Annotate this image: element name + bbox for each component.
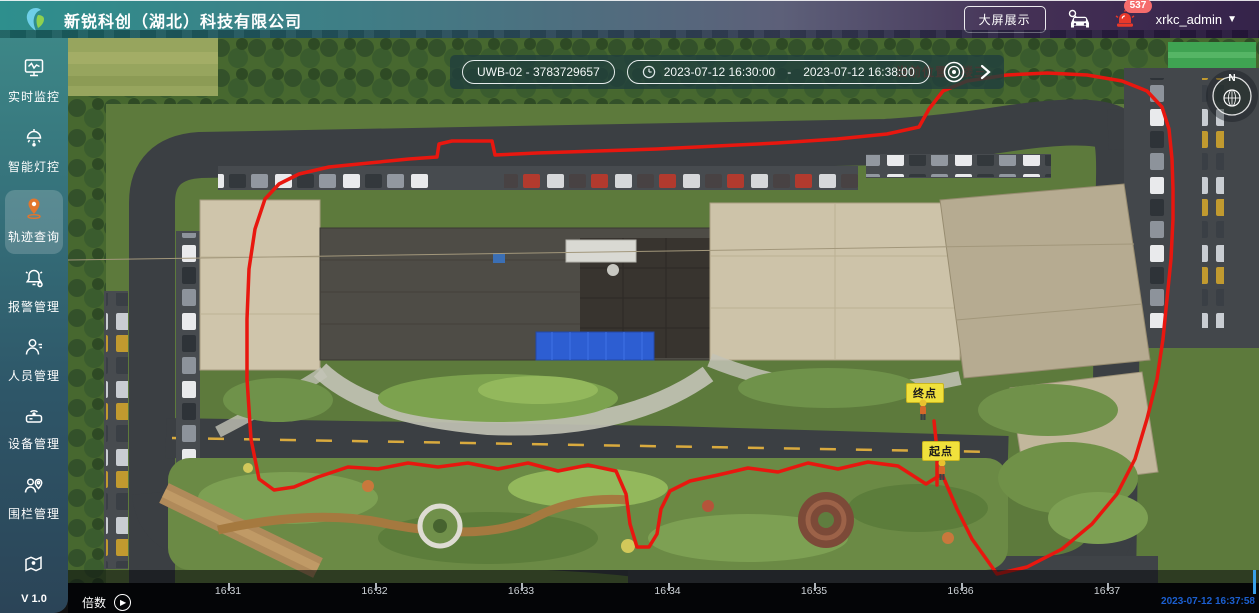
sidebar-item-alarm-management[interactable]: 报警管理 xyxy=(0,264,68,324)
trajectory-pin-icon xyxy=(5,196,63,222)
person-marker-end-icon xyxy=(916,399,930,426)
username-label: xrkc_admin xyxy=(1156,12,1222,27)
timeline-tick-label: 16:32 xyxy=(361,585,387,597)
person-marker-start-icon xyxy=(935,459,949,486)
time-range-picker[interactable]: 2023-07-12 16:30:00 - 2023-07-12 16:38:0… xyxy=(627,60,930,84)
company-logo-icon xyxy=(22,6,50,34)
timeline-track[interactable] xyxy=(68,570,1259,583)
header: 新锐科创（湖北）科技有限公司 大屏展示 xyxy=(0,0,1259,38)
sidebar-item-smart-lighting[interactable]: 智能灯控 xyxy=(0,124,68,184)
timeline-tick-label: 16:36 xyxy=(947,585,973,597)
sidebar-item-label: 轨迹查询 xyxy=(5,228,63,245)
sidebar-item-label: 实时监控 xyxy=(0,88,68,105)
sidebar-item-label: 设备管理 xyxy=(0,435,68,452)
time-start-value: 2023-07-12 16:30:00 xyxy=(664,65,775,79)
sidebar-item-label: 智能灯控 xyxy=(0,158,68,175)
sidebar: 实时监控 智能灯控 xyxy=(0,38,68,613)
aerial-map[interactable]: UWB-02 - 3783729657 2023-07-12 16:30:00 … xyxy=(68,38,1259,583)
compass-control[interactable]: N xyxy=(1204,68,1259,124)
time-separator: - xyxy=(787,65,791,79)
compass-north-label: N xyxy=(1228,73,1235,84)
notification-count-badge: 537 xyxy=(1124,0,1153,13)
smart-light-icon xyxy=(0,126,68,152)
header-actions: 大屏展示 xyxy=(964,6,1237,33)
fence-icon xyxy=(0,473,68,499)
user-menu[interactable]: xrkc_admin ▼ xyxy=(1156,12,1237,27)
play-button[interactable]: ▶ xyxy=(114,594,131,611)
time-end-value: 2023-07-12 16:38:00 xyxy=(803,65,914,79)
current-time-label: 2023-07-12 16:37:58 xyxy=(1161,596,1255,607)
timeline-tick-label: 16:37 xyxy=(1094,585,1120,597)
sidebar-item-trajectory-query[interactable]: 轨迹查询 xyxy=(5,190,63,254)
alarm-notifications-icon[interactable]: 537 xyxy=(1114,9,1136,30)
person-icon xyxy=(0,335,68,361)
sidebar-item-device-management[interactable]: 设备管理 xyxy=(0,401,68,461)
trajectory-query-bar: UWB-02 - 3783729657 2023-07-12 16:30:00 … xyxy=(450,55,1004,89)
timeline-tick-label: 16:34 xyxy=(654,585,680,597)
timeline-tick-label: 16:35 xyxy=(801,585,827,597)
search-icon[interactable] xyxy=(942,60,966,84)
page-title: 新锐科创（湖北）科技有限公司 xyxy=(64,8,302,32)
clock-icon xyxy=(642,65,656,79)
timeline-tick-label: 16:31 xyxy=(215,585,241,597)
map-icon xyxy=(0,552,68,578)
chevron-down-icon: ▼ xyxy=(1227,14,1237,25)
device-select[interactable]: UWB-02 - 3783729657 xyxy=(462,60,615,84)
sidebar-item-fence-management[interactable]: 围栏管理 xyxy=(0,471,68,531)
big-screen-button[interactable]: 大屏展示 xyxy=(964,6,1046,33)
monitor-icon xyxy=(0,56,68,82)
timeline-playhead[interactable] xyxy=(1253,570,1256,594)
timeline: 16:3116:3216:3316:3416:3516:3616:37 倍数 ▶… xyxy=(68,570,1259,613)
sidebar-item-label: 人员管理 xyxy=(0,367,68,384)
sidebar-item-label: 围栏管理 xyxy=(0,505,68,522)
version-label: V 1.0 xyxy=(0,593,68,605)
collapse-arrow-icon[interactable] xyxy=(978,63,992,81)
playback-speed-control: 倍数 ▶ xyxy=(82,594,131,611)
timeline-tick-label: 16:33 xyxy=(508,585,534,597)
app-root: 新锐科创（湖北）科技有限公司 大屏展示 xyxy=(0,0,1259,613)
sidebar-item-personnel-management[interactable]: 人员管理 xyxy=(0,333,68,393)
sidebar-item-realtime-monitor[interactable]: 实时监控 xyxy=(0,54,68,114)
alarm-bell-icon xyxy=(0,266,68,292)
device-select-value: UWB-02 - 3783729657 xyxy=(477,65,600,79)
speed-label: 倍数 xyxy=(82,594,106,611)
vehicle-search-icon[interactable] xyxy=(1066,9,1094,31)
sidebar-item-label: 报警管理 xyxy=(0,298,68,315)
device-icon xyxy=(0,403,68,429)
start-marker-label: 起点 xyxy=(922,441,960,461)
